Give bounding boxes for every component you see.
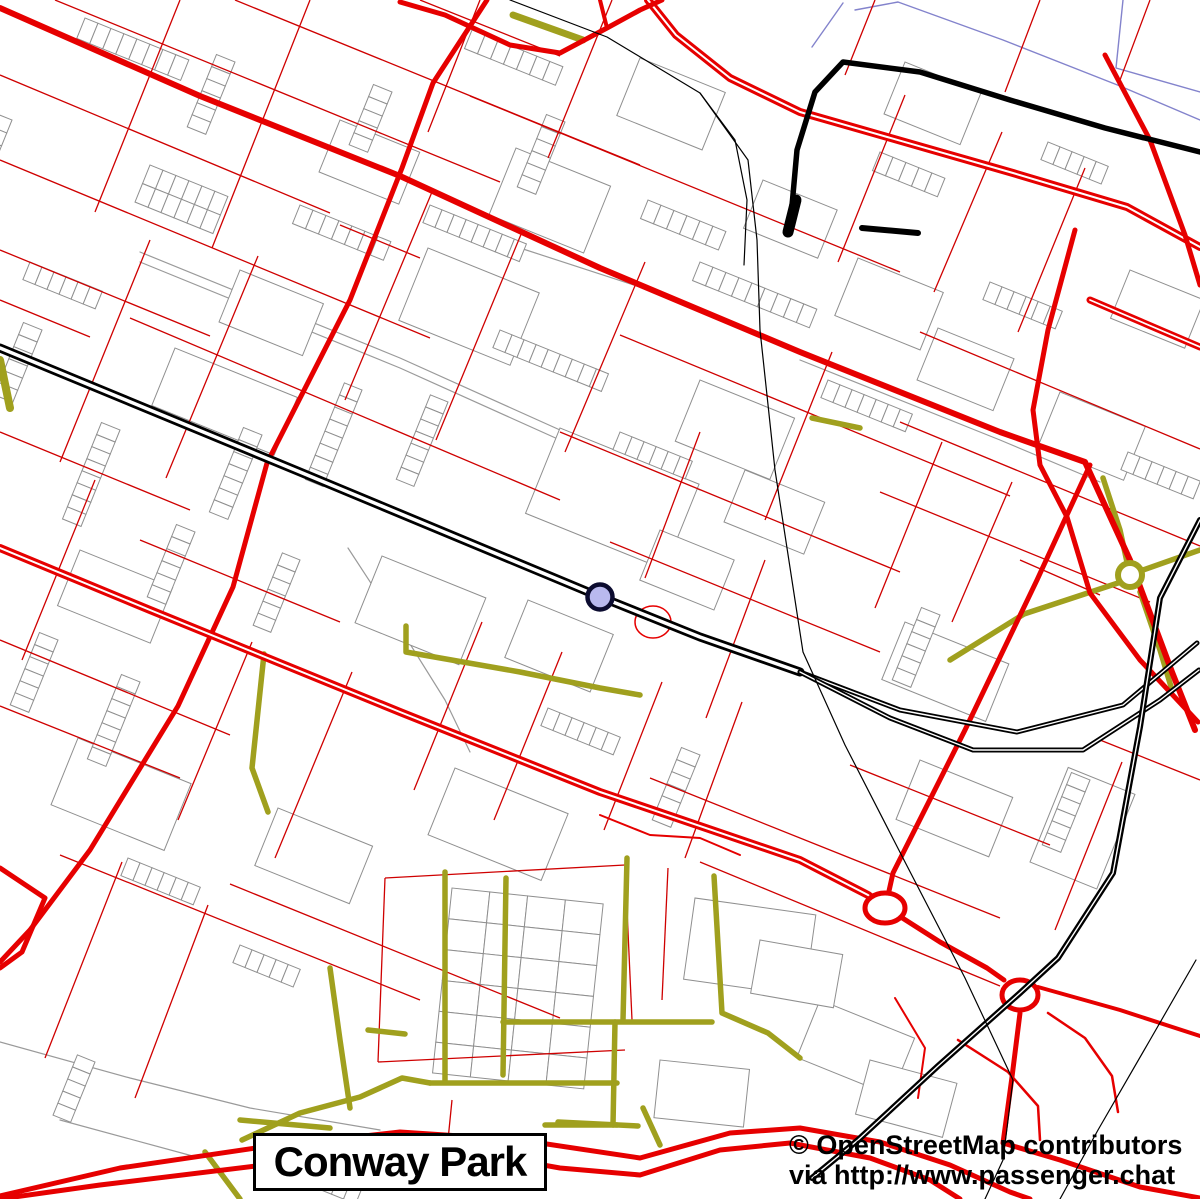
terrace-row [62, 423, 120, 527]
attribution-line2: via http://www.passenger.chat [789, 1160, 1182, 1190]
park-path-circle [1118, 563, 1142, 587]
terrace-row [10, 633, 58, 713]
map-attribution: © OpenStreetMap contributors via http://… [789, 1130, 1182, 1190]
terrace-row [1121, 452, 1200, 499]
place-label: Conway Park [253, 1133, 547, 1191]
dock-water-outline [812, 0, 1200, 120]
place-label-text: Conway Park [274, 1141, 527, 1183]
roundabout [865, 893, 905, 923]
station-marker[interactable] [588, 585, 613, 610]
terrace-row [305, 383, 362, 487]
terrace-row [23, 262, 102, 309]
terrace-row [147, 525, 195, 605]
terrace-row [253, 553, 300, 632]
terrace-row [0, 112, 12, 198]
map-viewport[interactable]: Conway Park © OpenStreetMap contributors… [0, 0, 1200, 1199]
terrace-row [53, 1055, 95, 1122]
terrace-row [873, 152, 945, 197]
terrace-row [135, 165, 228, 234]
terrace-row [121, 858, 200, 905]
terrace-row [233, 945, 300, 987]
terrace-row [1041, 142, 1108, 184]
terrace-row [541, 708, 620, 755]
map-canvas[interactable] [0, 0, 1200, 1199]
attribution-line1: © OpenStreetMap contributors [789, 1130, 1182, 1160]
terrace-row [396, 395, 448, 486]
terrace-row [465, 30, 563, 85]
terrace-row [641, 200, 726, 250]
